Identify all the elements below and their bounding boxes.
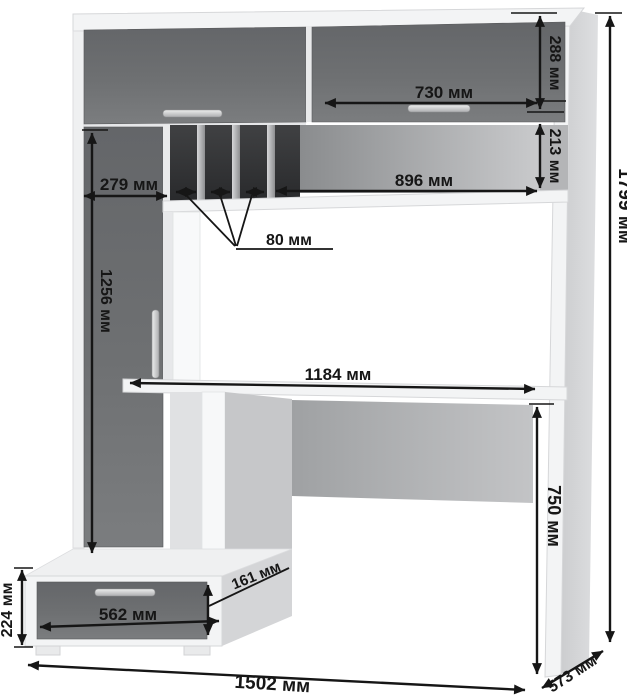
upper-right-door-handle — [408, 105, 470, 112]
pigeonhole-left-wall — [163, 125, 170, 203]
dim-label-1799: 1799 мм — [614, 168, 627, 244]
dim-label-279: 279 мм — [100, 175, 158, 194]
pedestal-foot — [184, 646, 210, 655]
upper-door-gap — [306, 26, 312, 122]
modesty-panel — [292, 400, 533, 503]
upper-left-door-handle — [163, 110, 222, 117]
pigeonhole-divider — [267, 125, 275, 201]
dim-label-213: 213 мм — [546, 129, 563, 184]
pigeonhole-slot — [240, 125, 267, 201]
pigeonhole-slot — [275, 125, 300, 201]
center-upright — [173, 212, 200, 384]
pigeonhole-slot — [205, 125, 232, 201]
pigeonhole-slot — [170, 125, 197, 201]
drawing-canvas: 288 мм 730 мм 213 мм 896 мм 279 мм 80 мм… — [0, 0, 627, 700]
dim-label-1256: 1256 мм — [97, 269, 114, 333]
tall-door-handle — [152, 310, 159, 378]
pedestal-foot — [36, 646, 60, 655]
lower-upright-shade — [170, 392, 202, 556]
dim-label-750: 750 мм — [544, 485, 564, 547]
dim-label-288: 288 мм — [546, 36, 563, 91]
pigeonhole-divider — [232, 125, 240, 201]
dim-label-1184: 1184 мм — [305, 365, 372, 384]
upper-left-door — [84, 27, 306, 124]
lower-upright — [202, 392, 225, 557]
center-upright-edge — [163, 212, 173, 384]
pigeonhole-divider — [197, 125, 205, 201]
drawer-handle — [95, 589, 155, 596]
dim-label-224: 224 мм — [0, 583, 16, 638]
left-side-panel-edge — [73, 31, 84, 548]
dim-label-80: 80 мм — [266, 232, 312, 249]
dimension-drawing: 288 мм 730 мм 213 мм 896 мм 279 мм 80 мм… — [0, 0, 627, 700]
dim-label-562: 562 мм — [99, 605, 157, 624]
dim-label-730: 730 мм — [415, 83, 473, 102]
dim-label-896: 896 мм — [395, 171, 453, 190]
lower-upright-side-face — [225, 392, 292, 557]
